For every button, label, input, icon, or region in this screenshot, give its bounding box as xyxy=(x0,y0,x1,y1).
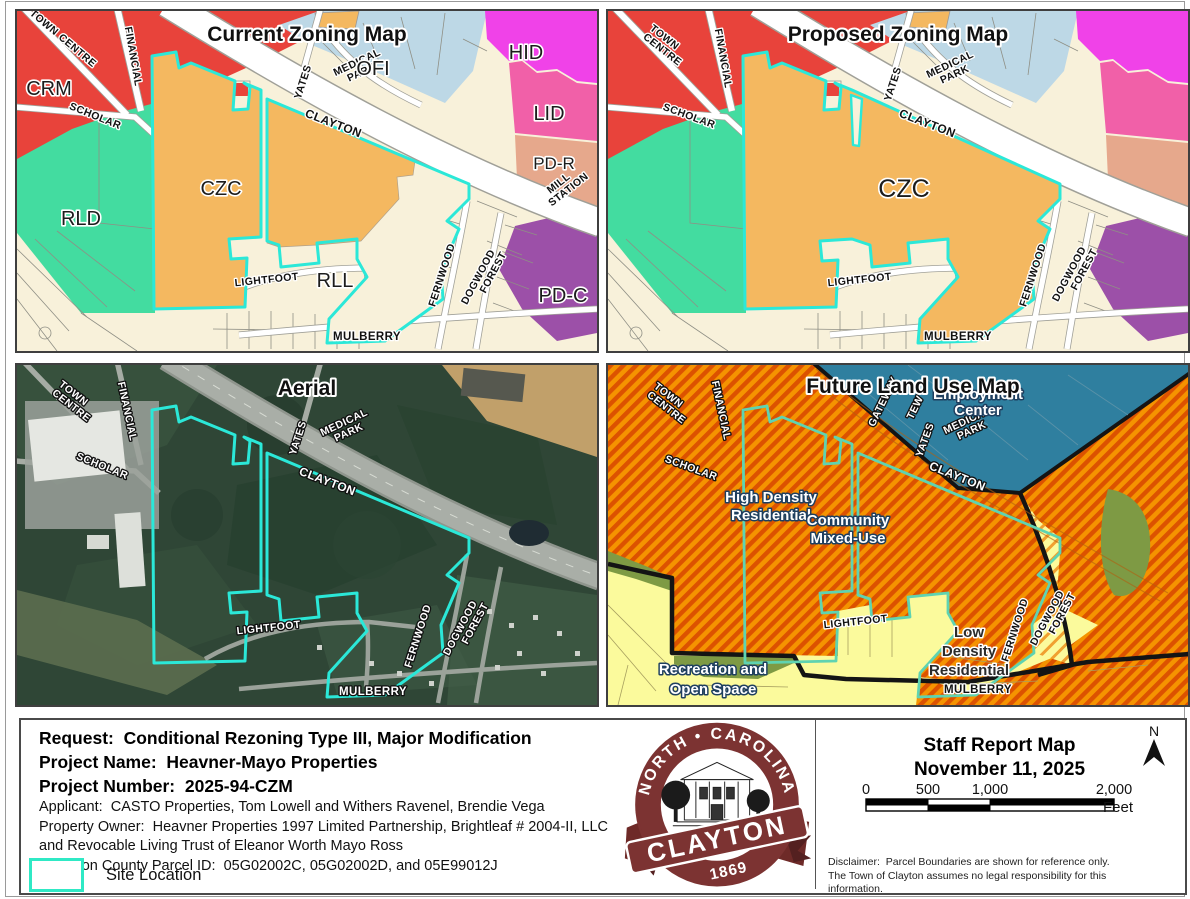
info-strip: Request: Conditional Rezoning Type III, … xyxy=(19,718,1187,895)
zone-label-rld: RLD xyxy=(61,208,101,230)
request-line: Request: Conditional Rezoning Type III, … xyxy=(39,726,619,750)
panel-title-future-land-use: Future Land Use Map xyxy=(806,375,1020,398)
street-label-mulberry: MULBERRY xyxy=(924,331,992,343)
panel-title-aerial: Aerial xyxy=(278,377,336,400)
flu-label-community-mixed-use: CommunityMixed-Use xyxy=(807,512,890,547)
owner-line-1: Property Owner: Heavner Properties 1997 … xyxy=(39,818,619,838)
zone-label-lid: LID xyxy=(533,103,564,125)
project-name-line: Project Name: Heavner-Mayo Properties xyxy=(39,750,619,774)
zone-label-czc: CZC xyxy=(200,178,241,200)
flu-label-high-density: High DensityResidential xyxy=(725,489,817,524)
page-frame: TOWNCENTRE FINANCIAL SCHOLAR YATES MEDIC… xyxy=(5,1,1185,897)
zone-label-czc: CZC xyxy=(878,175,929,203)
site-location-label: Site Location xyxy=(106,866,201,885)
town-seal-logo: NORTH • CAROLINA CLAYTON 1869 xyxy=(621,722,813,890)
zone-label-hid: HID xyxy=(509,42,543,64)
scale-tick-2000: 2,000 xyxy=(1096,782,1132,798)
panel-aerial: TOWNCENTRE FINANCIAL SCHOLAR YATES MEDIC… xyxy=(15,363,599,707)
applicant-line: Applicant: CASTO Properties, Tom Lowell … xyxy=(39,798,619,818)
street-label-mulberry: MULBERRY xyxy=(339,686,407,698)
staff-report-block: Staff Report Map November 11, 2025 0 500… xyxy=(816,720,1183,889)
legend: Site Location xyxy=(29,858,201,892)
staff-report-title: Staff Report Map xyxy=(816,734,1183,758)
disclaimer-text: Disclaimer: Parcel Boundaries are shown … xyxy=(828,856,1128,897)
panel-title-proposed-zoning: Proposed Zoning Map xyxy=(788,23,1009,46)
street-label-mulberry: MULBERRY xyxy=(944,684,1012,696)
scale-bar: 0 500 1,000 2,000 Feet xyxy=(858,782,1168,823)
scale-tick-500: 500 xyxy=(916,782,940,798)
scale-tick-0: 0 xyxy=(862,782,870,798)
panel-proposed-zoning-map: TOWNCENTRE FINANCIAL SCHOLAR YATES MEDIC… xyxy=(606,9,1190,353)
panel-title-current-zoning: Current Zoning Map xyxy=(207,23,406,46)
zone-label-pdr: PD-R xyxy=(533,154,575,173)
zone-label-rll: RLL xyxy=(317,270,354,292)
owner-line-2: and Revocable Living Trust of Eleanor Wo… xyxy=(39,837,619,857)
scale-unit-label: Feet xyxy=(1103,799,1134,816)
north-label: N xyxy=(1149,724,1159,739)
zone-label-crm: CRM xyxy=(26,78,72,100)
scale-bar-segments xyxy=(866,799,1114,811)
staff-report-date: November 11, 2025 xyxy=(816,758,1183,782)
north-arrow: N xyxy=(1139,724,1169,768)
scale-tick-1000: 1,000 xyxy=(972,782,1008,798)
panel-current-zoning-map: TOWNCENTRE FINANCIAL SCHOLAR YATES MEDIC… xyxy=(15,9,599,353)
zone-label-ofi: OFI xyxy=(356,58,389,80)
project-number-line: Project Number: 2025-94-CZM xyxy=(39,774,619,798)
site-location-swatch xyxy=(29,858,84,892)
zone-label-pdc: PD-C xyxy=(539,285,588,307)
request-info-block: Request: Conditional Rezoning Type III, … xyxy=(39,726,619,876)
north-arrow-glyph xyxy=(1143,739,1165,766)
panel-future-land-use-map: TOWNCENTRE FINANCIAL SCHOLAR GATEWAY TEW… xyxy=(606,363,1190,707)
street-label-mulberry: MULBERRY xyxy=(333,331,401,343)
